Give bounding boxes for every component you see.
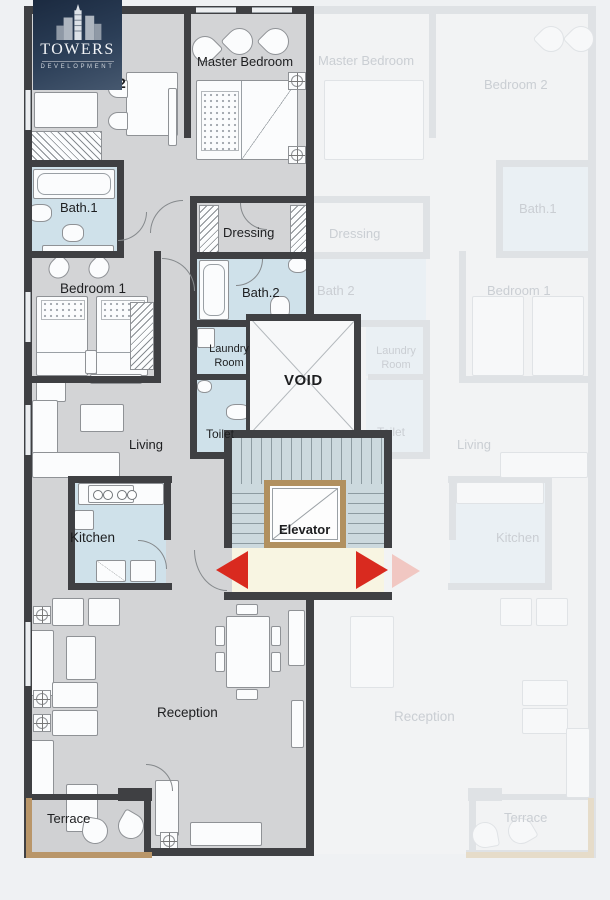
dining-chair — [271, 626, 281, 646]
mirror-label-bath2: Bath 2 — [317, 283, 355, 298]
terrace-rail — [26, 852, 152, 858]
mirror-bed — [472, 296, 524, 376]
desk-chair — [108, 112, 128, 130]
bed — [196, 80, 298, 160]
mirror-sofa — [500, 452, 588, 478]
mirror-label-bedroom1: Bedroom 1 — [487, 283, 551, 298]
stair-treads — [232, 438, 384, 484]
wall — [190, 374, 252, 380]
label-elevator: Elevator — [279, 522, 330, 537]
mirror-wall — [314, 196, 430, 203]
wall — [117, 160, 124, 258]
stair-treads — [232, 484, 268, 548]
coffee-table — [80, 404, 124, 432]
cabinet — [291, 700, 304, 748]
mirror-wall — [496, 160, 596, 167]
wardrobe — [130, 302, 154, 370]
dining-chair — [271, 652, 281, 672]
armchair — [88, 598, 120, 626]
wall — [190, 196, 197, 259]
loveseat — [52, 682, 98, 708]
mirror-wall — [459, 376, 596, 383]
label-terrace: Terrace — [47, 811, 90, 826]
bathtub — [199, 260, 229, 320]
wall — [24, 251, 124, 258]
mirror-wall — [496, 251, 596, 258]
mirror-wall — [423, 320, 430, 458]
label-reception: Reception — [157, 705, 218, 720]
label-void: VOID — [284, 372, 323, 389]
mirror-wall — [423, 196, 430, 259]
bathtub — [33, 169, 115, 199]
wardrobe — [30, 131, 102, 162]
spotlight-icon — [33, 690, 51, 708]
wall — [68, 583, 172, 590]
mirror-dining-table — [350, 616, 394, 688]
mirror-wall — [448, 583, 552, 590]
wall — [224, 592, 392, 600]
mirror-wall — [314, 6, 596, 14]
mirror-label-bedroom2: Bedroom 2 — [484, 77, 548, 92]
wall — [224, 430, 392, 438]
label-bedroom1: Bedroom 1 — [60, 281, 126, 296]
wall — [30, 794, 126, 800]
mirror-label-bath1: Bath.1 — [519, 201, 557, 216]
window — [25, 292, 31, 342]
wall — [246, 314, 361, 321]
dresser — [34, 92, 98, 128]
window — [25, 90, 31, 130]
dining-chair — [215, 652, 225, 672]
pillow — [201, 91, 239, 151]
mirror-label-reception: Reception — [394, 709, 455, 724]
wall — [184, 6, 191, 138]
mirror-label-terrace: Terrace — [504, 810, 547, 825]
terrace-rail — [26, 798, 32, 856]
sink — [62, 224, 84, 242]
mirror-bed — [532, 296, 584, 376]
mirror-wall — [314, 252, 430, 259]
mirror-terrace-rail — [588, 798, 594, 856]
sink — [288, 257, 308, 273]
entry-arrow-right-icon — [356, 551, 388, 589]
window — [196, 7, 236, 13]
cabinet — [96, 560, 126, 582]
spotlight-icon — [288, 146, 306, 164]
mirror-wall — [449, 476, 456, 540]
label-bath2: Bath.2 — [242, 285, 280, 300]
label-toilet: Toilet — [206, 427, 234, 441]
mirror-wall — [429, 6, 436, 138]
window — [25, 622, 31, 686]
mirror-terrace-rail — [466, 852, 594, 858]
dining-chair — [215, 626, 225, 646]
label-dressing: Dressing — [223, 225, 274, 240]
wall — [144, 848, 314, 856]
mirror-label-living: Living — [457, 437, 491, 452]
sofa — [30, 740, 54, 796]
sink — [74, 510, 94, 530]
armchair — [52, 598, 84, 626]
spotlight-icon — [33, 606, 51, 624]
mirror-loveseat — [522, 680, 568, 706]
mirror-wall — [496, 160, 503, 258]
dining-chair — [236, 689, 258, 700]
dining-chair — [236, 604, 258, 615]
sofa — [30, 630, 54, 696]
mirror-wall — [368, 374, 430, 380]
window — [25, 405, 31, 455]
mirror-wall — [545, 476, 552, 590]
mirror-label-dressing: Dressing — [329, 226, 380, 241]
bed — [36, 296, 88, 376]
wall — [190, 320, 197, 380]
label-living: Living — [129, 437, 163, 452]
wall — [224, 430, 232, 548]
mirror-bed — [324, 80, 424, 160]
stove — [88, 485, 134, 503]
spotlight-icon — [288, 72, 306, 90]
mirror-sofa — [566, 728, 590, 798]
label-kitchen: Kitchen — [70, 530, 115, 545]
mirror-counter — [456, 482, 544, 504]
stair-treads — [348, 484, 384, 548]
label-laundry: Laundry Room — [203, 342, 255, 371]
sofa — [190, 822, 262, 846]
spotlight-icon — [33, 714, 51, 732]
dining-table — [226, 616, 270, 688]
logo-tagline-text: DEVELOPMENT — [41, 64, 115, 70]
mirror-label-master-bedroom: Master Bedroom — [318, 53, 414, 68]
mirror-label-kitchen: Kitchen — [496, 530, 539, 545]
wall — [354, 314, 361, 438]
cabinet — [288, 610, 305, 666]
entry-arrow-left-icon — [216, 551, 248, 589]
nightstand — [85, 350, 97, 374]
elevator-cab — [264, 480, 346, 548]
label-bath1: Bath.1 — [60, 200, 98, 215]
wall — [24, 376, 161, 383]
wall — [68, 476, 172, 483]
wall — [154, 251, 161, 383]
sink — [197, 380, 212, 393]
mirror-loveseat — [522, 708, 568, 734]
mirror-armchair — [536, 598, 568, 626]
wall — [190, 196, 314, 203]
towers-development-logo: TOWERS DEVELOPMENT — [33, 0, 122, 90]
mirror-entry-arrow-icon — [392, 554, 420, 588]
floor-plan: Master Bedroom Bedroom 2 Bath.1 Dressing… — [0, 0, 610, 900]
wall — [190, 252, 314, 259]
label-master-bedroom: Master Bedroom — [197, 54, 293, 69]
wall — [164, 476, 171, 540]
shelf — [168, 88, 177, 146]
wardrobe — [199, 205, 219, 253]
logo-brand-text: TOWERS — [40, 42, 114, 58]
wall — [190, 374, 197, 458]
coffee-table — [66, 636, 96, 680]
sofa — [32, 400, 58, 458]
mirror-wall — [459, 251, 466, 383]
wall — [384, 430, 392, 548]
sofa — [32, 452, 120, 478]
wall — [24, 160, 124, 167]
window — [252, 7, 292, 13]
wall — [144, 794, 151, 854]
skyline-icon — [50, 4, 106, 40]
mirror-armchair — [500, 598, 532, 626]
logo-divider — [42, 61, 114, 62]
mirror-label-laundry: Laundry Room — [370, 344, 422, 373]
loveseat — [52, 710, 98, 736]
